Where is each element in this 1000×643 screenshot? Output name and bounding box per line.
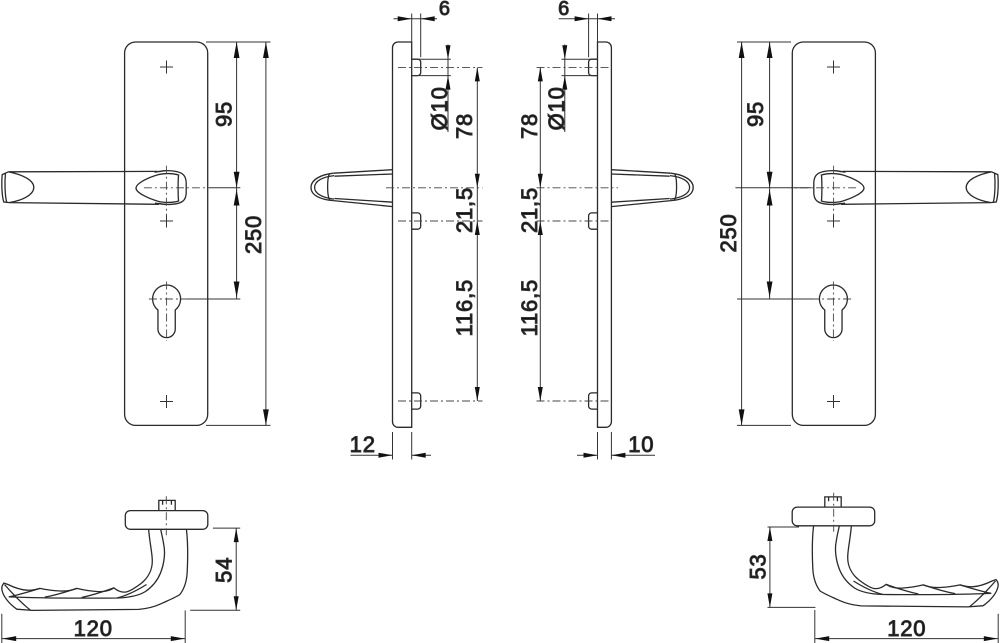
svg-text:54: 54 <box>211 557 236 583</box>
svg-text:6: 6 <box>558 0 570 20</box>
svg-text:Ø10: Ø10 <box>427 86 452 130</box>
svg-text:78: 78 <box>452 113 477 139</box>
svg-text:78: 78 <box>517 113 542 139</box>
svg-text:250: 250 <box>716 213 741 252</box>
svg-text:21,5: 21,5 <box>517 187 542 233</box>
svg-text:10: 10 <box>628 432 654 457</box>
svg-text:95: 95 <box>743 101 768 127</box>
svg-text:116,5: 116,5 <box>452 279 477 336</box>
svg-text:120: 120 <box>887 616 926 641</box>
svg-text:Ø10: Ø10 <box>544 86 569 130</box>
svg-text:116,5: 116,5 <box>517 279 542 336</box>
svg-text:53: 53 <box>746 553 771 579</box>
svg-text:6: 6 <box>439 0 451 20</box>
svg-text:12: 12 <box>350 432 376 457</box>
svg-text:21,5: 21,5 <box>452 187 477 233</box>
svg-text:120: 120 <box>74 616 113 641</box>
svg-text:95: 95 <box>212 101 237 127</box>
svg-text:250: 250 <box>241 215 266 254</box>
